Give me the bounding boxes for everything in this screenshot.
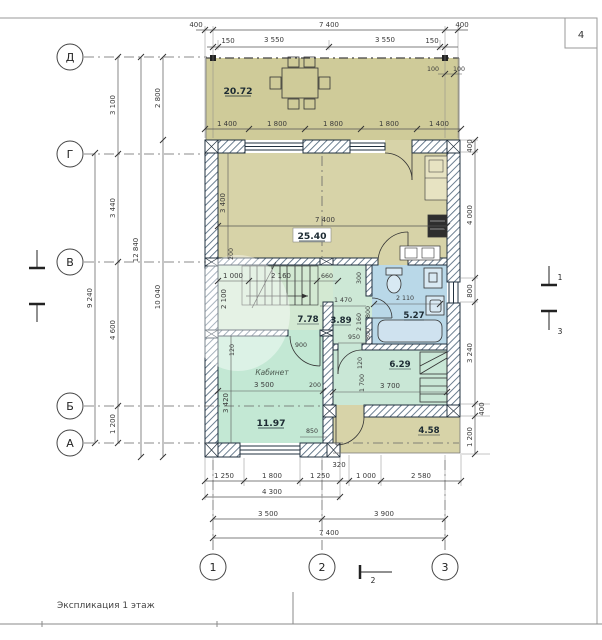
axis-row-label: Б	[66, 400, 74, 413]
svg-text:1 800: 1 800	[267, 120, 287, 128]
svg-text:1 800: 1 800	[379, 120, 399, 128]
svg-text:10 040: 10 040	[154, 285, 162, 310]
svg-text:660: 660	[321, 273, 333, 280]
sheet-number: 4	[578, 30, 584, 41]
svg-text:200: 200	[309, 382, 321, 389]
svg-text:950: 950	[348, 334, 360, 341]
svg-text:2 160: 2 160	[271, 272, 291, 280]
svg-text:850: 850	[306, 428, 318, 435]
area-living: 25.40	[297, 231, 326, 242]
room-utility	[333, 350, 447, 405]
svg-text:900: 900	[295, 342, 307, 349]
svg-text:1 000: 1 000	[356, 472, 376, 480]
area-util: 6.29	[389, 360, 410, 370]
axis-row-label: Г	[67, 148, 74, 161]
svg-text:320: 320	[332, 461, 345, 469]
section-mark-bottom	[360, 565, 392, 579]
axis-row-label: В	[66, 256, 74, 269]
svg-text:120: 120	[229, 344, 236, 356]
svg-text:3 400: 3 400	[219, 193, 227, 213]
svg-text:300: 300	[356, 272, 363, 284]
svg-text:4 600: 4 600	[109, 320, 117, 340]
svg-text:3 900: 3 900	[374, 510, 394, 518]
svg-text:12 840: 12 840	[132, 238, 140, 263]
svg-text:3 500: 3 500	[258, 510, 278, 518]
area-hall: 7.78	[297, 315, 318, 325]
svg-text:2 800: 2 800	[154, 88, 162, 108]
svg-text:120: 120	[357, 357, 364, 369]
svg-text:1 400: 1 400	[217, 120, 237, 128]
room-label-office: Кабинет	[255, 368, 289, 377]
bathtub	[378, 320, 442, 342]
svg-text:400: 400	[478, 402, 486, 415]
kitchen-counter	[425, 156, 447, 200]
toilet	[386, 268, 402, 293]
axis-col-label: 2	[319, 561, 326, 574]
area-terrace: 20.72	[223, 86, 252, 97]
window	[240, 446, 300, 454]
svg-text:400: 400	[455, 21, 468, 29]
svg-text:4 000: 4 000	[466, 205, 474, 225]
svg-text:3 550: 3 550	[264, 36, 284, 44]
floor-plan-drawing: 4	[0, 0, 602, 640]
svg-text:400: 400	[466, 139, 474, 152]
svg-text:1 400: 1 400	[429, 120, 449, 128]
room-porch	[333, 417, 460, 453]
axis-row-label: Д	[66, 51, 75, 64]
window	[449, 282, 458, 303]
area-office: 11.97	[256, 418, 285, 429]
bathroom-sink	[426, 296, 444, 315]
svg-text:7 400: 7 400	[319, 529, 339, 537]
svg-text:7 400: 7 400	[315, 216, 335, 224]
svg-text:100: 100	[453, 66, 465, 73]
svg-text:1 200: 1 200	[109, 414, 117, 434]
svg-text:7 400: 7 400	[319, 21, 339, 29]
svg-text:1 200: 1 200	[466, 427, 474, 447]
section-label-3: 3	[558, 327, 563, 336]
svg-text:400: 400	[189, 21, 202, 29]
svg-text:1 470: 1 470	[334, 297, 352, 304]
svg-text:800: 800	[365, 328, 372, 340]
section-label-2: 2	[371, 576, 376, 585]
svg-text:9 240: 9 240	[86, 288, 94, 308]
svg-text:150: 150	[425, 37, 438, 45]
svg-text:3 440: 3 440	[109, 198, 117, 218]
svg-text:1 800: 1 800	[262, 472, 282, 480]
kitchen-sink	[400, 246, 440, 260]
svg-text:2 160: 2 160	[356, 313, 363, 331]
section-mark-right	[541, 266, 557, 330]
svg-text:1 250: 1 250	[310, 472, 330, 480]
svg-text:1 800: 1 800	[323, 120, 343, 128]
svg-text:1 250: 1 250	[214, 472, 234, 480]
area-bath: 5.27	[403, 311, 424, 321]
svg-text:2 580: 2 580	[411, 472, 431, 480]
washing-machine	[424, 268, 442, 288]
axis-col-label: 3	[442, 561, 449, 574]
svg-text:3 100: 3 100	[109, 95, 117, 115]
area-corridor: 3.89	[330, 316, 351, 326]
svg-text:3 240: 3 240	[466, 343, 474, 363]
section-label-1: 1	[558, 273, 563, 282]
svg-text:800: 800	[365, 306, 372, 318]
svg-text:3 420: 3 420	[222, 393, 230, 413]
axis-row-label: А	[66, 437, 74, 450]
svg-text:4 300: 4 300	[262, 488, 282, 496]
drawing-sheet: 4	[0, 0, 602, 640]
svg-text:1 000: 1 000	[223, 272, 243, 280]
svg-text:3 500: 3 500	[254, 381, 274, 389]
svg-text:2 110: 2 110	[396, 295, 414, 302]
area-porch: 4.58	[418, 426, 439, 436]
svg-text:100: 100	[427, 66, 439, 73]
svg-text:3 700: 3 700	[380, 382, 400, 390]
svg-text:3 550: 3 550	[375, 36, 395, 44]
svg-text:1 700: 1 700	[359, 374, 366, 392]
svg-text:150: 150	[221, 37, 234, 45]
axis-col-label: 1	[210, 561, 217, 574]
svg-text:2 100: 2 100	[220, 289, 228, 309]
svg-text:200: 200	[228, 248, 235, 260]
section-mark-left	[29, 250, 45, 322]
svg-text:800: 800	[466, 284, 474, 297]
drawing-title: Экспликация 1 этаж	[57, 601, 155, 611]
